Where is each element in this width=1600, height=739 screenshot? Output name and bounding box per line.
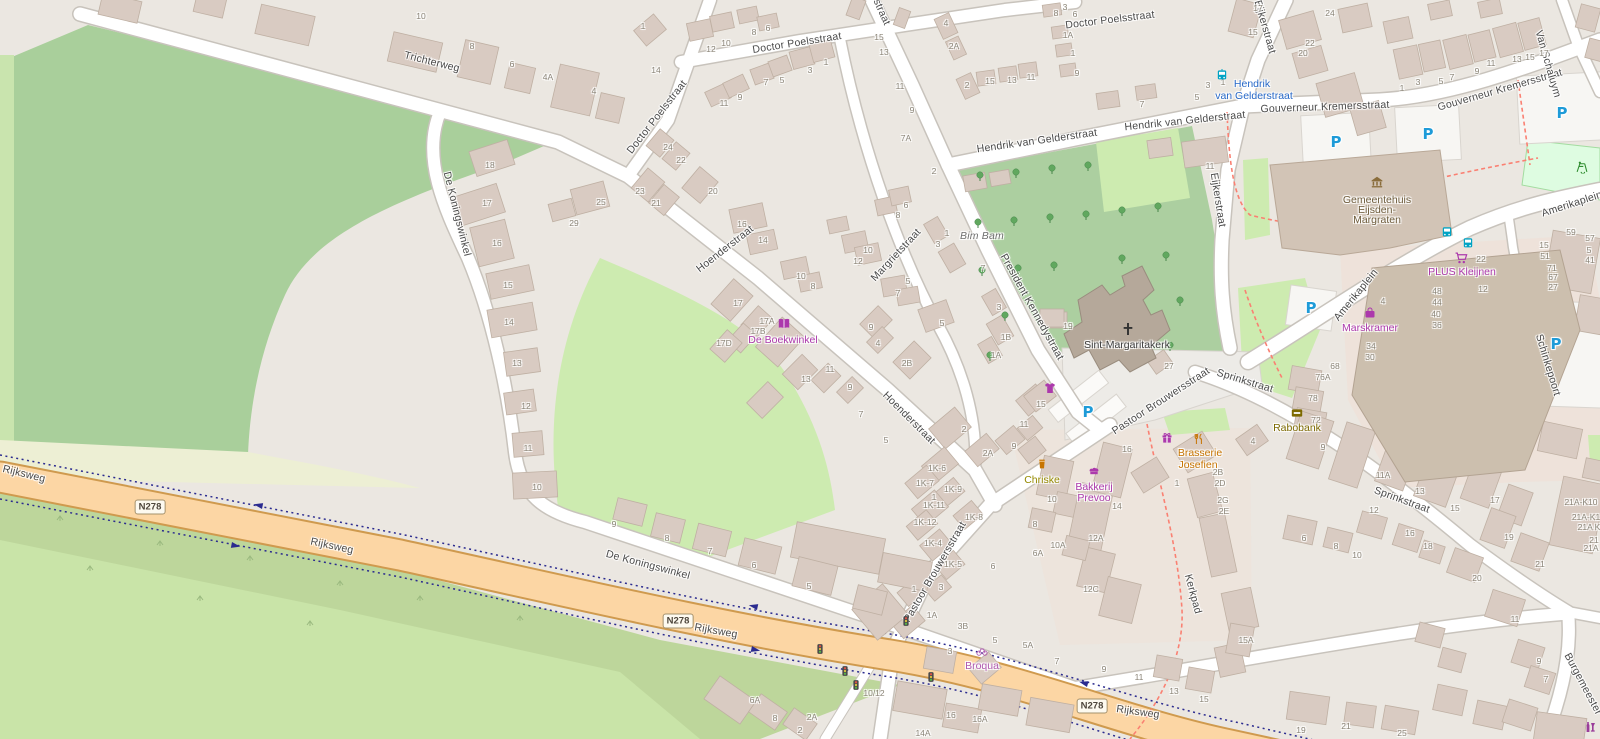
building	[1040, 309, 1064, 327]
townhall-icon	[1371, 176, 1384, 189]
building	[1153, 655, 1182, 681]
building	[504, 62, 535, 93]
building	[1018, 62, 1038, 78]
book-icon	[778, 318, 791, 331]
building	[963, 172, 987, 192]
building	[998, 66, 1018, 82]
building	[1147, 137, 1173, 158]
building	[1181, 136, 1228, 168]
playground-icon	[1575, 161, 1589, 174]
building	[1096, 91, 1120, 110]
building	[976, 70, 996, 86]
route-shield-n278: N278	[1077, 699, 1108, 714]
building	[1286, 691, 1330, 724]
building	[1059, 63, 1077, 77]
cup-icon	[1037, 458, 1048, 471]
bag-icon	[1364, 307, 1376, 319]
cross-icon	[1122, 322, 1135, 337]
bicycle-icon	[975, 645, 989, 657]
map-base-layer	[0, 0, 1600, 739]
building	[989, 169, 1011, 186]
traffic-signal-icon	[928, 671, 934, 683]
bank-icon	[1291, 407, 1304, 420]
building	[595, 93, 624, 124]
bar-icon	[1584, 721, 1596, 734]
route-shield-n278: N278	[135, 500, 166, 515]
traffic-signal-icon	[853, 679, 859, 691]
cart-icon	[1455, 252, 1468, 265]
traffic-signal-icon	[903, 615, 909, 627]
tram-icon	[1216, 69, 1228, 81]
route-shield-n278: N278	[663, 614, 694, 629]
building	[512, 471, 557, 499]
gift-icon	[1161, 432, 1173, 444]
traffic-signal-icon	[842, 665, 848, 677]
building	[1433, 684, 1468, 716]
shirt-icon	[1044, 382, 1057, 394]
building	[1051, 25, 1069, 39]
building	[923, 647, 956, 674]
building	[1055, 43, 1073, 57]
building	[1042, 3, 1061, 17]
building	[896, 286, 920, 306]
building	[504, 389, 537, 415]
building	[1226, 623, 1255, 657]
building	[1344, 702, 1377, 728]
traffic-signal-icon	[817, 643, 823, 655]
building	[503, 348, 540, 376]
building	[1135, 84, 1157, 101]
building	[1185, 667, 1214, 693]
gemeentehuis-building	[1270, 150, 1452, 255]
building	[512, 431, 544, 458]
bus-icon	[1462, 237, 1474, 249]
restaurant-icon	[1193, 433, 1205, 446]
bakery-icon	[1088, 464, 1101, 476]
map-canvas[interactable]: TrichterwegDoctor PoelsstraatDoctor Poel…	[0, 0, 1600, 739]
bus-icon	[1441, 226, 1453, 238]
